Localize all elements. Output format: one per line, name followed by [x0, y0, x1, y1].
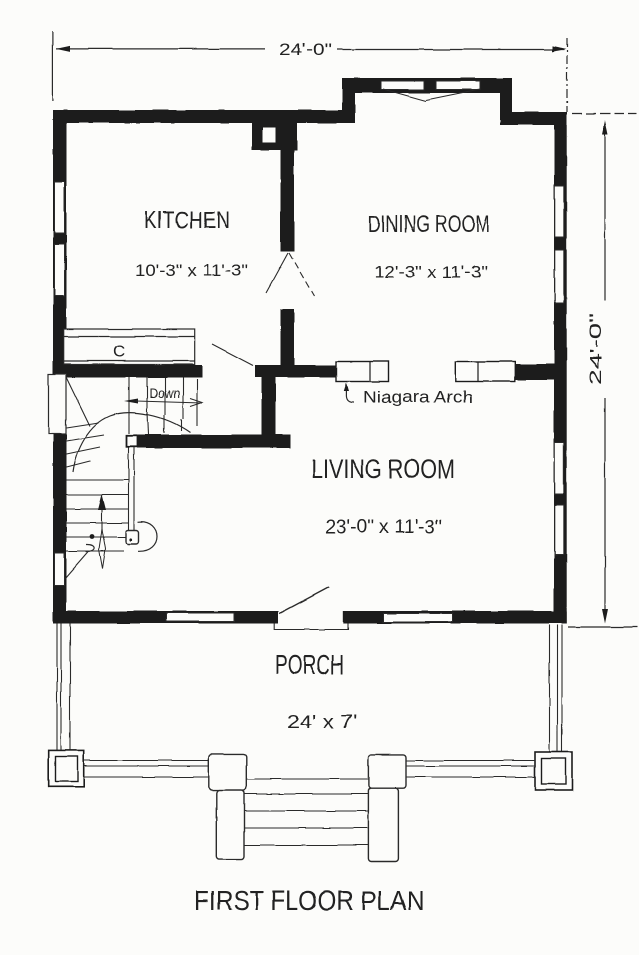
svg-text:24'-0": 24'-0" [586, 313, 605, 385]
svg-text:23'-0" x 11'-3": 23'-0" x 11'-3" [325, 517, 442, 538]
svg-text:PORCH: PORCH [275, 649, 344, 680]
svg-text:Down: Down [149, 385, 180, 401]
svg-text:12'-3" x 11'-3": 12'-3" x 11'-3" [374, 263, 488, 282]
svg-text:FIRST FLOOR PLAN: FIRST FLOOR PLAN [194, 885, 424, 916]
svg-text:C: C [113, 342, 125, 361]
svg-text:24'-0": 24'-0" [279, 40, 332, 59]
svg-text:LIVING ROOM: LIVING ROOM [311, 454, 455, 484]
svg-text:Niagara Arch: Niagara Arch [363, 388, 473, 407]
svg-text:KITCHEN: KITCHEN [144, 207, 230, 234]
svg-text:DINING ROOM: DINING ROOM [368, 211, 490, 238]
svg-text:24' x 7': 24' x 7' [287, 712, 357, 732]
svg-text:10'-3" x 11'-3": 10'-3" x 11'-3" [135, 261, 248, 280]
